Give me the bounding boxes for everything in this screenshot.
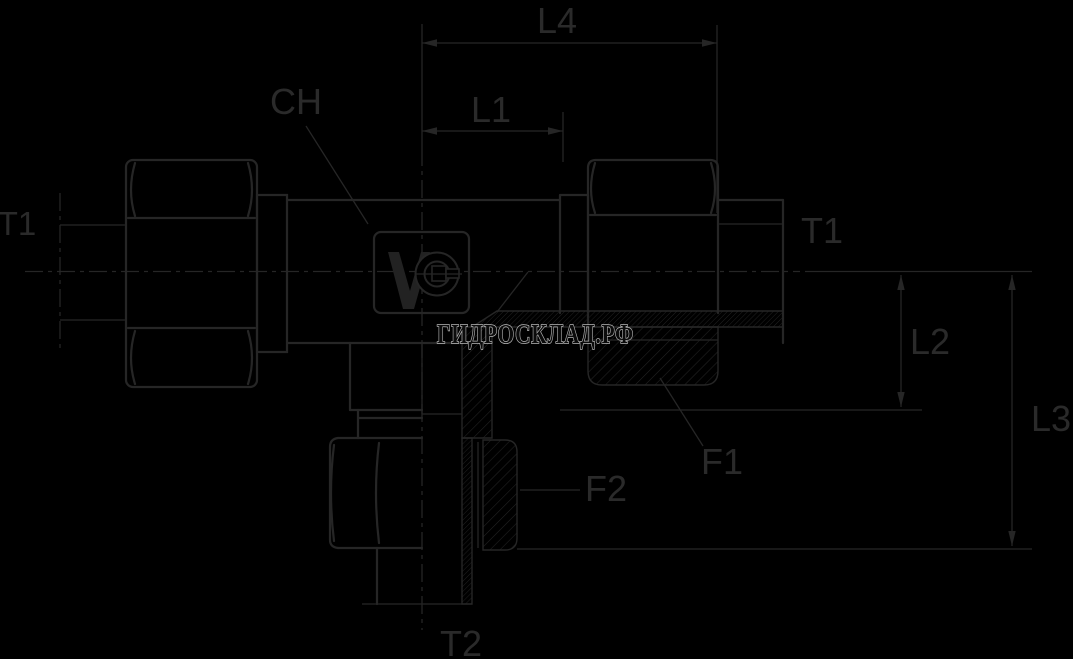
- label-t2: T2: [440, 623, 482, 659]
- label-f2: F2: [585, 468, 627, 509]
- fitting-technical-drawing: L4 L1 CH T1 T1 L2 L3 F1 F2 T2 ГИДРОСКЛАД…: [0, 0, 1073, 659]
- label-t1-right: T1: [801, 210, 843, 251]
- drawing-stage: L4 L1 CH T1 T1 L2 L3 F1 F2 T2 ГИДРОСКЛАД…: [0, 0, 1073, 659]
- watermark-text: ГИДРОСКЛАД.РФ: [437, 319, 634, 349]
- label-t1-left: T1: [0, 205, 36, 242]
- label-l3: L3: [1031, 398, 1071, 439]
- label-l4: L4: [537, 0, 577, 41]
- vo-logo-icon: [388, 252, 462, 309]
- label-l2: L2: [910, 321, 950, 362]
- label-ch: CH: [270, 81, 322, 122]
- label-l1: L1: [471, 89, 511, 130]
- label-f1: F1: [701, 441, 743, 482]
